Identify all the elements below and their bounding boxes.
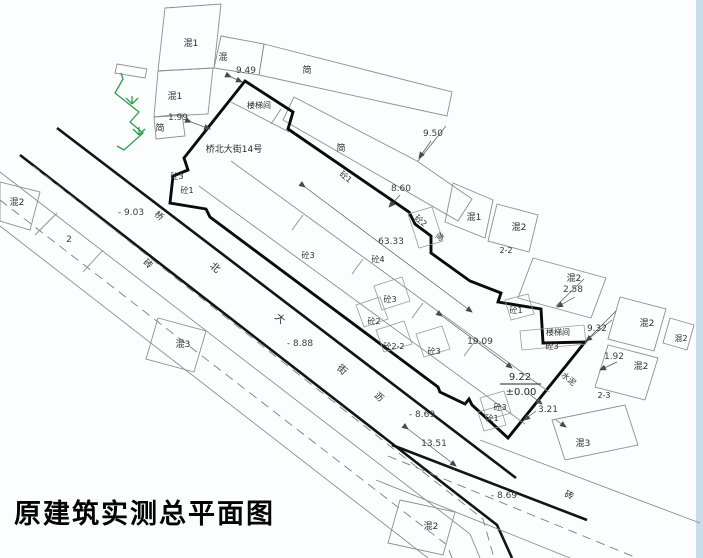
elevation-label: - 8.88 [287, 339, 313, 349]
building-label: 混3 [176, 339, 191, 350]
scan-edge-strip [696, 0, 703, 558]
building-label: 混 [218, 52, 227, 63]
dim-label-6333: 63.33 [378, 237, 404, 247]
structure-label: 砼1 [180, 185, 193, 195]
dim-label-1909: 19.09 [467, 337, 493, 347]
structure-label: 砼3 [301, 250, 314, 260]
dim-label-932: 9.32 [587, 324, 607, 334]
structure-label: 砼1 [509, 305, 522, 315]
section-label-23: 2-3 [597, 391, 610, 400]
structure-label: 砼1 [485, 413, 498, 423]
lane-number-label: 2 [66, 235, 72, 245]
building-label: 混2 [634, 361, 649, 372]
building-label: 混2 [674, 334, 687, 343]
building-label: 混1 [467, 212, 482, 223]
dim-label-860: 8.60 [391, 184, 411, 194]
structure-label: 砼2-2 [383, 341, 404, 351]
structure-label: 砼3 [545, 341, 558, 351]
building-label: 简 [155, 122, 164, 134]
site-plan-drawing: 混1 混 9.49 简 混1 1.99 简 楼梯间 桥北大街14号 简 砼1 9… [0, 0, 703, 558]
datum-zero: ±0.00 [506, 387, 537, 398]
drawing-title: 原建筑实测总平面图 [14, 498, 275, 530]
section-label-22: 2-2 [499, 246, 512, 255]
building-label: 混2 [424, 521, 439, 532]
stairwell-label-top: 楼梯间 [247, 100, 271, 110]
elevation-label: - 8.69 [409, 410, 435, 420]
paper-background [0, 0, 703, 558]
datum-value: 9.22 [509, 372, 531, 383]
dim-label-321: 3.21 [538, 405, 558, 415]
building-label: 混2 [567, 273, 582, 284]
structure-label: 砼3 [493, 402, 506, 412]
building-label: 混1 [184, 38, 199, 49]
structure-label: 砼4 [371, 254, 384, 264]
structure-label: 砼2 [367, 316, 380, 326]
survey-site-plan: 混1 混 9.49 简 混1 1.99 简 楼梯间 桥北大街14号 简 砼1 9… [0, 0, 703, 558]
building-label: 简 [336, 142, 345, 154]
building-label: 混2 [640, 318, 655, 329]
building-label: 混1 [168, 91, 183, 102]
dim-label-192: 1.92 [604, 352, 624, 362]
structure-label: 砼3 [383, 294, 396, 304]
dim-label-949: 9.49 [236, 66, 256, 76]
building-label: 混2 [10, 197, 25, 208]
elevation-label: - 9.03 [118, 208, 144, 218]
elevation-label: - 8.69 [491, 491, 517, 501]
dim-label-950: 9.50 [423, 129, 443, 139]
stairwell-label-right: 楼梯间 [546, 327, 570, 337]
dim-label-258: 2.58 [563, 285, 583, 295]
structure-label: 砼3 [427, 346, 440, 356]
building-label: 混3 [576, 438, 591, 449]
address-label: 桥北大街14号 [206, 143, 262, 155]
dim-label-199: 1.99 [168, 113, 188, 123]
building-label: 简 [302, 64, 311, 76]
dim-label-1351: 13.51 [421, 439, 447, 449]
structure-label: 砼3 [170, 171, 183, 181]
building-label: 混2 [512, 222, 527, 233]
